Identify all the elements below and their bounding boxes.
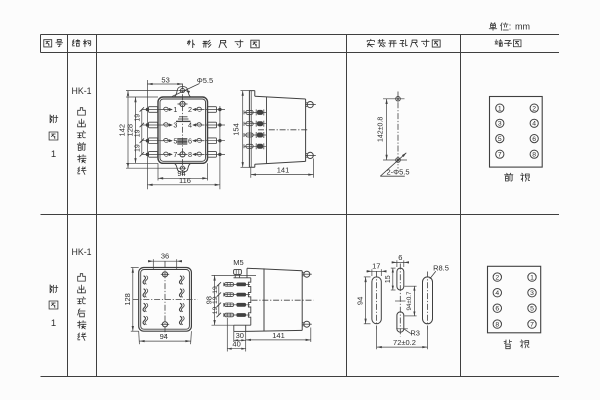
svg-text:3: 3 — [498, 121, 502, 128]
svg-text:2: 2 — [532, 106, 536, 113]
svg-text:94±0.7: 94±0.7 — [406, 291, 413, 310]
svg-text:72±0.2: 72±0.2 — [393, 338, 416, 347]
svg-text:5: 5 — [173, 136, 177, 145]
svg-text:2: 2 — [495, 275, 499, 282]
svg-text:Φ5.5: Φ5.5 — [197, 76, 213, 85]
svg-text:40: 40 — [232, 340, 240, 349]
svg-text:19: 19 — [135, 129, 142, 137]
svg-text:2-Φ5.5: 2-Φ5.5 — [386, 167, 409, 176]
svg-text:HK-1: HK-1 — [71, 247, 91, 257]
svg-text:5: 5 — [530, 306, 534, 313]
svg-text:mm: mm — [515, 22, 530, 32]
svg-text:4: 4 — [495, 290, 499, 297]
svg-text:1: 1 — [51, 318, 56, 329]
svg-text:19: 19 — [212, 296, 219, 304]
svg-text:53: 53 — [161, 75, 169, 84]
svg-text:19: 19 — [212, 306, 219, 314]
svg-text:154: 154 — [232, 123, 241, 136]
svg-text:8: 8 — [495, 322, 499, 329]
svg-text:3: 3 — [530, 290, 534, 297]
svg-text:1: 1 — [51, 149, 56, 160]
svg-text:7: 7 — [530, 322, 534, 329]
svg-text:M5: M5 — [233, 258, 243, 267]
svg-text:4: 4 — [532, 121, 536, 128]
svg-text:1: 1 — [173, 105, 177, 114]
svg-text:36: 36 — [161, 252, 169, 261]
svg-text:6: 6 — [398, 253, 402, 262]
svg-text:94: 94 — [160, 332, 168, 341]
svg-text:19: 19 — [135, 114, 142, 122]
svg-text:94: 94 — [356, 297, 365, 305]
svg-text:141: 141 — [272, 331, 285, 340]
svg-text:17: 17 — [372, 262, 380, 271]
svg-text:15: 15 — [385, 275, 392, 283]
svg-text:128: 128 — [123, 293, 132, 306]
svg-text:142±0.8: 142±0.8 — [377, 117, 384, 142]
svg-text:116: 116 — [179, 176, 191, 185]
svg-text:141: 141 — [277, 165, 290, 174]
svg-text:2: 2 — [188, 105, 192, 114]
svg-text:6: 6 — [495, 306, 499, 313]
svg-text:8: 8 — [532, 152, 536, 159]
svg-text:R3: R3 — [410, 329, 420, 338]
svg-text:6: 6 — [532, 136, 536, 143]
svg-text:7: 7 — [173, 150, 177, 159]
svg-text:7: 7 — [498, 152, 502, 159]
svg-text:HK-1: HK-1 — [71, 86, 91, 96]
svg-text:1: 1 — [498, 106, 502, 113]
svg-text:128: 128 — [126, 124, 135, 137]
svg-text:R8.5: R8.5 — [433, 264, 449, 273]
svg-text:5: 5 — [498, 136, 502, 143]
svg-text:1: 1 — [530, 275, 534, 282]
svg-text:6: 6 — [188, 136, 192, 145]
svg-text:19: 19 — [212, 286, 219, 294]
svg-text:8: 8 — [188, 150, 192, 159]
svg-text:19: 19 — [135, 144, 142, 152]
svg-text::: : — [509, 22, 512, 32]
